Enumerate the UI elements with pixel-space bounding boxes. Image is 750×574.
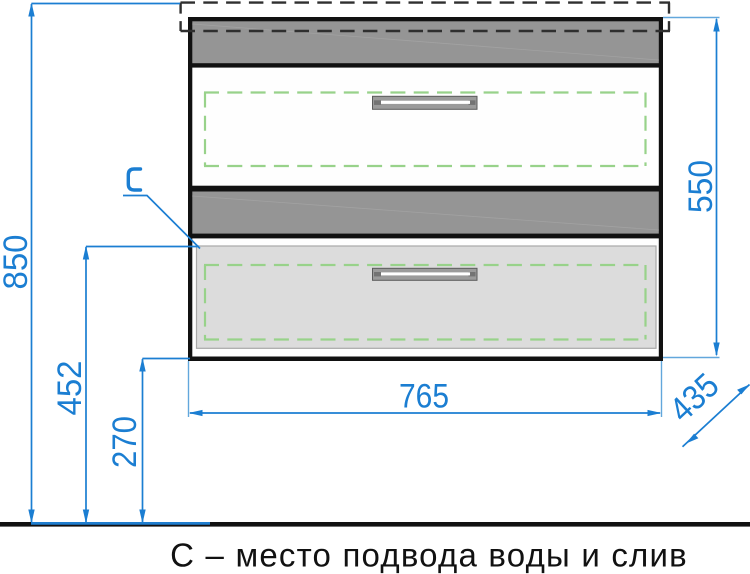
svg-text:452: 452 [51,361,89,416]
svg-text:765: 765 [399,378,449,416]
svg-text:С – место подвода воды и слив: С – место подвода воды и слив [170,537,688,574]
svg-text:270: 270 [106,416,144,468]
svg-text:550: 550 [682,160,720,213]
svg-text:850: 850 [0,235,35,290]
